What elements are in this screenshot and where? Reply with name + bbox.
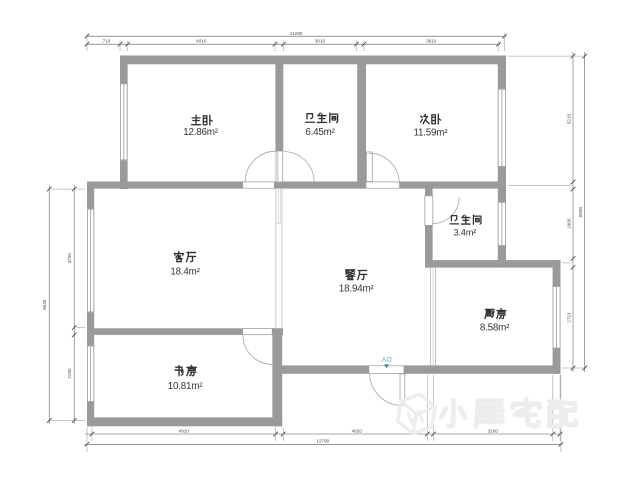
svg-text:18.4m²: 18.4m² xyxy=(170,267,200,278)
svg-text:5210: 5210 xyxy=(566,113,571,124)
svg-text:3610: 3610 xyxy=(426,39,437,44)
svg-text:6540: 6540 xyxy=(42,299,47,310)
svg-text:1900: 1900 xyxy=(566,218,571,229)
svg-text:8.58m²: 8.58m² xyxy=(480,323,510,334)
svg-text:11290: 11290 xyxy=(290,31,303,36)
svg-text:8580: 8580 xyxy=(578,206,583,217)
svg-text:4020: 4020 xyxy=(352,428,363,433)
svg-text:4010: 4010 xyxy=(196,39,207,44)
svg-text:3.4m²: 3.4m² xyxy=(454,228,477,238)
svg-text:710: 710 xyxy=(103,39,111,44)
svg-text:3750: 3750 xyxy=(67,253,72,264)
svg-text:12790: 12790 xyxy=(316,439,329,444)
svg-text:18.94m²: 18.94m² xyxy=(339,283,374,294)
svg-text:10.81m²: 10.81m² xyxy=(168,381,203,392)
svg-text:2713: 2713 xyxy=(566,312,571,323)
svg-text:6.45m²: 6.45m² xyxy=(305,127,335,138)
svg-text:3160: 3160 xyxy=(488,428,499,433)
svg-text:2200: 2200 xyxy=(67,368,72,379)
svg-text:11.59m²: 11.59m² xyxy=(413,127,448,138)
svg-text:3010: 3010 xyxy=(315,39,326,44)
svg-text:4910: 4910 xyxy=(179,428,190,433)
svg-text:12.86m²: 12.86m² xyxy=(183,127,218,138)
